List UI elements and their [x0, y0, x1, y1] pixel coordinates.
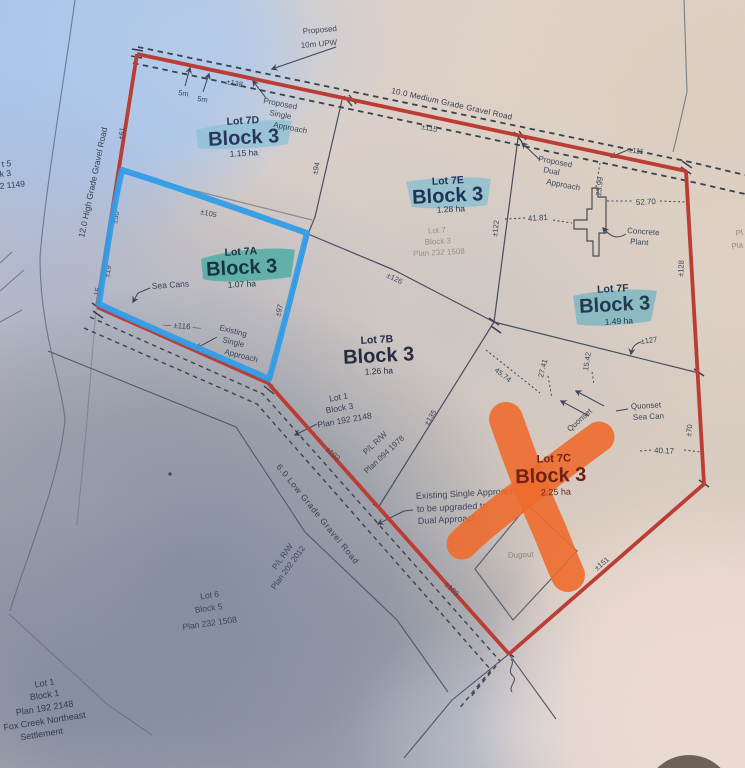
svg-text:Block 3: Block 3 [579, 292, 651, 318]
svg-text:Block 3: Block 3 [425, 236, 452, 246]
svg-text:Block 3: Block 3 [206, 255, 278, 281]
svg-text:41.81: 41.81 [528, 213, 549, 223]
svg-text:Block 3: Block 3 [208, 125, 280, 151]
svg-text:Plant: Plant [630, 237, 650, 247]
svg-text:52.70: 52.70 [636, 197, 657, 207]
svg-text:±128: ±128 [676, 260, 686, 277]
svg-text:1.49 ha: 1.49 ha [604, 315, 633, 326]
svg-text:5m: 5m [197, 94, 209, 104]
svg-text:40.17: 40.17 [654, 446, 675, 456]
svg-text:Sea Can: Sea Can [633, 411, 665, 422]
svg-text:Lot 7: Lot 7 [428, 226, 447, 236]
svg-text:Pl: Pl [735, 228, 744, 238]
svg-text:Quonset: Quonset [631, 400, 662, 411]
svg-text:1.26 ha: 1.26 ha [364, 365, 393, 376]
svg-text:k 3: k 3 [0, 168, 12, 179]
svg-text:Dugout: Dugout [508, 550, 535, 560]
svg-text:5m: 5m [178, 88, 190, 98]
svg-text:Block 3: Block 3 [343, 343, 415, 369]
svg-text:1.15 ha: 1.15 ha [229, 147, 258, 158]
svg-text:1.07 ha: 1.07 ha [227, 278, 256, 289]
svg-text:±70: ±70 [684, 424, 694, 437]
svg-text:1.28 ha: 1.28 ha [436, 203, 465, 214]
svg-text:±61: ±61 [116, 127, 127, 141]
svg-text:Block 3: Block 3 [515, 464, 587, 488]
svg-text:2.25 ha: 2.25 ha [541, 486, 571, 497]
svg-text:Pla: Pla [731, 240, 744, 251]
